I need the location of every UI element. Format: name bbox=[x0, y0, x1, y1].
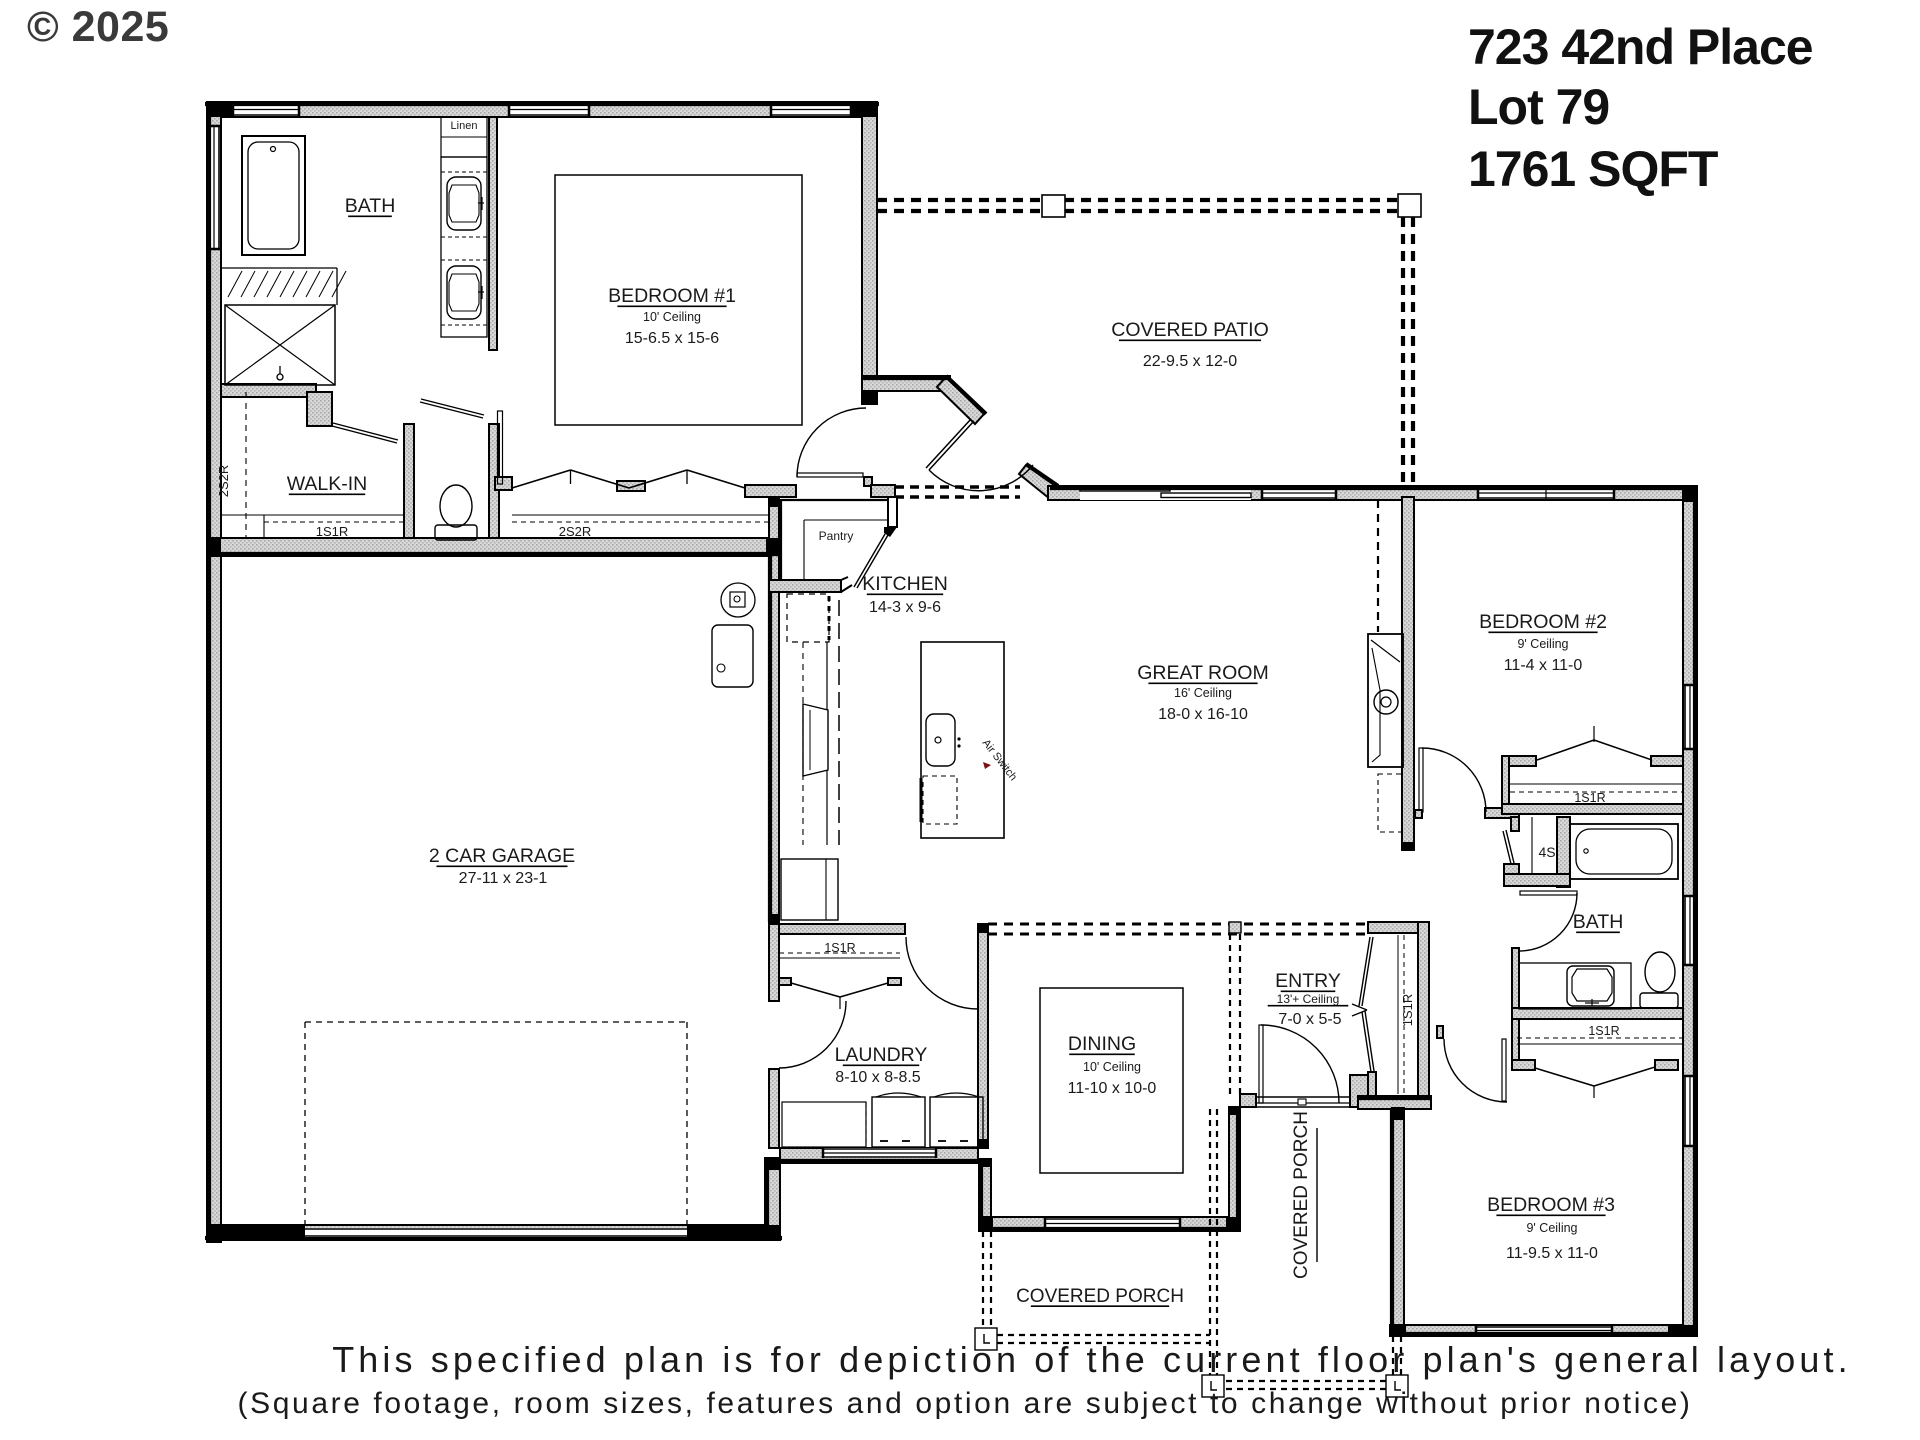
svg-text:22-9.5 x 12-0: 22-9.5 x 12-0 bbox=[1143, 353, 1237, 370]
svg-text:Pantry: Pantry bbox=[819, 529, 854, 543]
svg-text:GREAT ROOM: GREAT ROOM bbox=[1137, 662, 1268, 684]
svg-text:1761 SQFT: 1761 SQFT bbox=[1468, 141, 1718, 197]
svg-text:4S: 4S bbox=[1538, 844, 1555, 860]
svg-text:WALK-IN: WALK-IN bbox=[287, 473, 368, 495]
svg-text:11-4 x 11-0: 11-4 x 11-0 bbox=[1504, 657, 1583, 674]
svg-text:1S1R: 1S1R bbox=[824, 941, 855, 955]
svg-text:© 2025: © 2025 bbox=[27, 3, 169, 51]
svg-text:7-0 x 5-5: 7-0 x 5-5 bbox=[1278, 1011, 1341, 1028]
svg-text:BATH: BATH bbox=[1573, 911, 1624, 933]
svg-text:1S1R: 1S1R bbox=[316, 524, 349, 539]
svg-text:723 42nd Place: 723 42nd Place bbox=[1468, 19, 1813, 75]
svg-text:10' Ceiling: 10' Ceiling bbox=[643, 310, 701, 324]
svg-text:1S1R: 1S1R bbox=[1400, 994, 1415, 1027]
svg-text:This specified plan is for dep: This specified plan is for depiction of … bbox=[332, 1339, 1852, 1380]
svg-text:16' Ceiling: 16' Ceiling bbox=[1174, 686, 1232, 700]
svg-text:ENTRY: ENTRY bbox=[1275, 970, 1341, 992]
svg-text:BEDROOM #2: BEDROOM #2 bbox=[1479, 611, 1607, 633]
svg-text:2S2R: 2S2R bbox=[216, 465, 231, 498]
svg-text:(Square footage, room sizes, f: (Square footage, room sizes, features an… bbox=[238, 1387, 1693, 1420]
svg-text:KITCHEN: KITCHEN bbox=[862, 573, 948, 595]
svg-text:11-10 x 10-0: 11-10 x 10-0 bbox=[1068, 1080, 1157, 1097]
svg-text:COVERED PATIO: COVERED PATIO bbox=[1111, 319, 1268, 341]
svg-text:COVERED PORCH: COVERED PORCH bbox=[1016, 1286, 1184, 1307]
svg-text:1S1R: 1S1R bbox=[1574, 791, 1605, 805]
svg-text:9' Ceiling: 9' Ceiling bbox=[1526, 1221, 1577, 1235]
svg-text:10' Ceiling: 10' Ceiling bbox=[1083, 1060, 1141, 1074]
svg-text:BATH: BATH bbox=[345, 195, 396, 217]
svg-text:9' Ceiling: 9' Ceiling bbox=[1517, 637, 1568, 651]
svg-text:BEDROOM #3: BEDROOM #3 bbox=[1487, 1194, 1615, 1216]
svg-text:8-10 x 8-8.5: 8-10 x 8-8.5 bbox=[835, 1069, 920, 1086]
svg-text:1S1R: 1S1R bbox=[1588, 1024, 1619, 1038]
svg-text:11-9.5 x 11-0: 11-9.5 x 11-0 bbox=[1506, 1245, 1598, 1262]
svg-text:2S2R: 2S2R bbox=[559, 524, 592, 539]
svg-text:18-0 x 16-10: 18-0 x 16-10 bbox=[1158, 706, 1248, 723]
svg-text:27-11 x 23-1: 27-11 x 23-1 bbox=[459, 870, 548, 887]
svg-text:13'+ Ceiling: 13'+ Ceiling bbox=[1277, 992, 1340, 1006]
svg-text:Lot 79: Lot 79 bbox=[1468, 79, 1609, 135]
svg-text:DINING: DINING bbox=[1068, 1033, 1136, 1055]
svg-text:2 CAR GARAGE: 2 CAR GARAGE bbox=[429, 845, 575, 867]
svg-text:Linen: Linen bbox=[451, 120, 478, 132]
svg-text:COVERED PORCH: COVERED PORCH bbox=[1291, 1111, 1312, 1279]
svg-text:14-3 x 9-6: 14-3 x 9-6 bbox=[869, 599, 941, 616]
svg-text:LAUNDRY: LAUNDRY bbox=[835, 1044, 928, 1066]
svg-text:BEDROOM #1: BEDROOM #1 bbox=[608, 285, 736, 307]
svg-text:15-6.5 x 15-6: 15-6.5 x 15-6 bbox=[625, 330, 719, 347]
